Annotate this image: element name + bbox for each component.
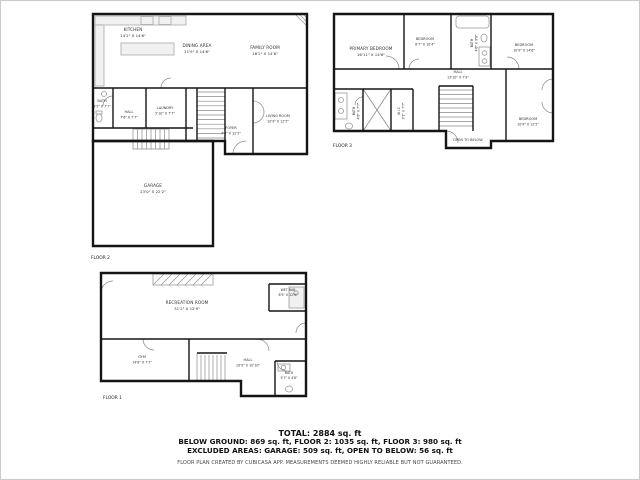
room-dims-primary-bedroom: 16'11" X 14'6" bbox=[357, 52, 385, 57]
room-dims-dining: 11'9" X 14'6" bbox=[184, 49, 210, 54]
room-dims-bath-left: 4'6" X 7'7" bbox=[357, 102, 361, 120]
room-dims-hall: 7'6" X 7'7" bbox=[120, 116, 138, 120]
room-dims-wetbar: 8'9" X 12'9" bbox=[278, 293, 298, 297]
room-dims-laundry: 5'10" X 7'7" bbox=[155, 112, 175, 116]
bathtub-icon bbox=[456, 16, 489, 28]
room-label-bedroom-right: BEDROOM bbox=[515, 43, 533, 47]
stairs-icon bbox=[197, 353, 225, 381]
excluded-areas-text: EXCLUDED AREAS: GARAGE: 509 sq. ft, OPEN… bbox=[1, 447, 639, 456]
disclaimer-text: FLOOR PLAN CREATED BY CUBICASA APP. MEAS… bbox=[1, 460, 639, 466]
floor-3-outer-walls bbox=[334, 14, 553, 148]
room-label-bath: BATH bbox=[97, 99, 107, 103]
hatch-area bbox=[295, 14, 307, 26]
toilet-icon bbox=[286, 386, 293, 392]
sink-icon bbox=[281, 365, 285, 369]
room-label-gym: GYM bbox=[138, 355, 146, 359]
room-label-bedroom-top: BEDROOM bbox=[416, 37, 434, 41]
room-label-laundry: LAUNDRY bbox=[157, 106, 175, 110]
floor-1-plan: RECREATION ROOM 31'2" X 12'9" WET BAR 8'… bbox=[101, 273, 306, 401]
vanity-icon bbox=[335, 93, 347, 119]
floor-plan-drawing: KITCHEN 14'2" X 14'6" DINING AREA 11'9" … bbox=[1, 1, 640, 480]
room-dims-bedroom-right: 10'9" X 14'6" bbox=[513, 49, 535, 53]
toilet-icon bbox=[346, 123, 353, 129]
floor-plan-sheet: KITCHEN 14'2" X 14'6" DINING AREA 11'9" … bbox=[0, 0, 640, 480]
room-label-wic: W.I.C bbox=[397, 106, 401, 115]
room-dims-bath: 3'5" X 7'7" bbox=[93, 105, 111, 109]
room-dims-wic: 3'1" X 7'7" bbox=[402, 102, 406, 120]
room-label-living: LIVING ROOM bbox=[266, 114, 290, 118]
room-label-family: FAMILY ROOM bbox=[250, 45, 280, 50]
room-label-hall-f3: HALL bbox=[454, 70, 463, 74]
room-label-kitchen: KITCHEN bbox=[124, 27, 143, 32]
room-label-wetbar: WET BAR bbox=[281, 288, 296, 292]
sink-icon bbox=[102, 92, 107, 97]
room-dims-living: 10'9" X 12'5" bbox=[267, 120, 289, 124]
room-dims-foyer: 7'8" X 12'5" bbox=[221, 132, 241, 136]
sink-icon bbox=[339, 98, 344, 103]
sink-icon bbox=[482, 59, 487, 64]
door-arc-icon bbox=[101, 281, 306, 371]
closet-x-icon bbox=[363, 89, 391, 131]
room-dims-gym: 14'8" X 7'7" bbox=[132, 361, 152, 365]
room-dims-hall-f1: 10'9" X 10'10" bbox=[236, 364, 260, 368]
toilet-icon bbox=[96, 114, 102, 122]
room-dims-hall-f3: 13'10" X 7'9" bbox=[447, 76, 469, 80]
room-label-recreation: RECREATION ROOM bbox=[166, 300, 209, 305]
room-dims-bath-f1: 5'7" X 4'8" bbox=[280, 376, 298, 380]
room-label-hall: HALL bbox=[125, 110, 134, 114]
stove-icon bbox=[141, 17, 153, 25]
sink-icon bbox=[482, 51, 487, 56]
room-label-bath-f1: BATH bbox=[285, 371, 294, 375]
room-label-bath-top: BATH bbox=[470, 38, 474, 47]
toilet-icon bbox=[481, 34, 487, 42]
floor-2-label: FLOOR 2 bbox=[91, 255, 110, 261]
room-label-bath-left: BATH bbox=[352, 106, 356, 115]
sink-icon bbox=[339, 109, 344, 114]
room-label-foyer: FOYER bbox=[225, 126, 237, 130]
area-summary: TOTAL: 2884 sq. ft BELOW GROUND: 869 sq.… bbox=[1, 429, 639, 466]
room-dims-garage: 23'0" X 22'2" bbox=[140, 189, 166, 194]
room-label-bedroom-bottom: BEDROOM bbox=[519, 117, 537, 121]
stairs-icon bbox=[439, 90, 473, 126]
room-dims-kitchen: 14'2" X 14'6" bbox=[120, 33, 146, 38]
kitchen-island bbox=[121, 43, 174, 55]
floor-3-label: FLOOR 3 bbox=[333, 143, 352, 149]
room-dims-bedroom-bottom: 10'9" X 12'5" bbox=[517, 123, 539, 127]
open-to-below-label: OPEN TO BELOW bbox=[453, 138, 483, 142]
sink-icon bbox=[159, 17, 171, 25]
basement-stairs-icon bbox=[133, 129, 169, 149]
floor-3-plan: PRIMARY BEDROOM 16'11" X 14'6" BEDROOM 8… bbox=[333, 14, 553, 149]
room-label-garage: GARAGE bbox=[144, 183, 162, 188]
room-dims-recreation: 31'2" X 12'9" bbox=[174, 306, 200, 311]
room-dims-family: 16'2" X 14'6" bbox=[252, 51, 278, 56]
room-dims-bath-top: 4'6" X 9'6" bbox=[475, 34, 479, 52]
room-label-primary-bedroom: PRIMARY BEDROOM bbox=[349, 46, 392, 51]
floor-2-plan: KITCHEN 14'2" X 14'6" DINING AREA 11'9" … bbox=[91, 14, 307, 261]
floor-1-label: FLOOR 1 bbox=[103, 395, 122, 401]
room-dims-bedroom-top: 8'7" X 10'4" bbox=[415, 43, 435, 47]
room-label-dining: DINING AREA bbox=[183, 43, 212, 48]
room-label-hall-f1: HALL bbox=[244, 358, 253, 362]
